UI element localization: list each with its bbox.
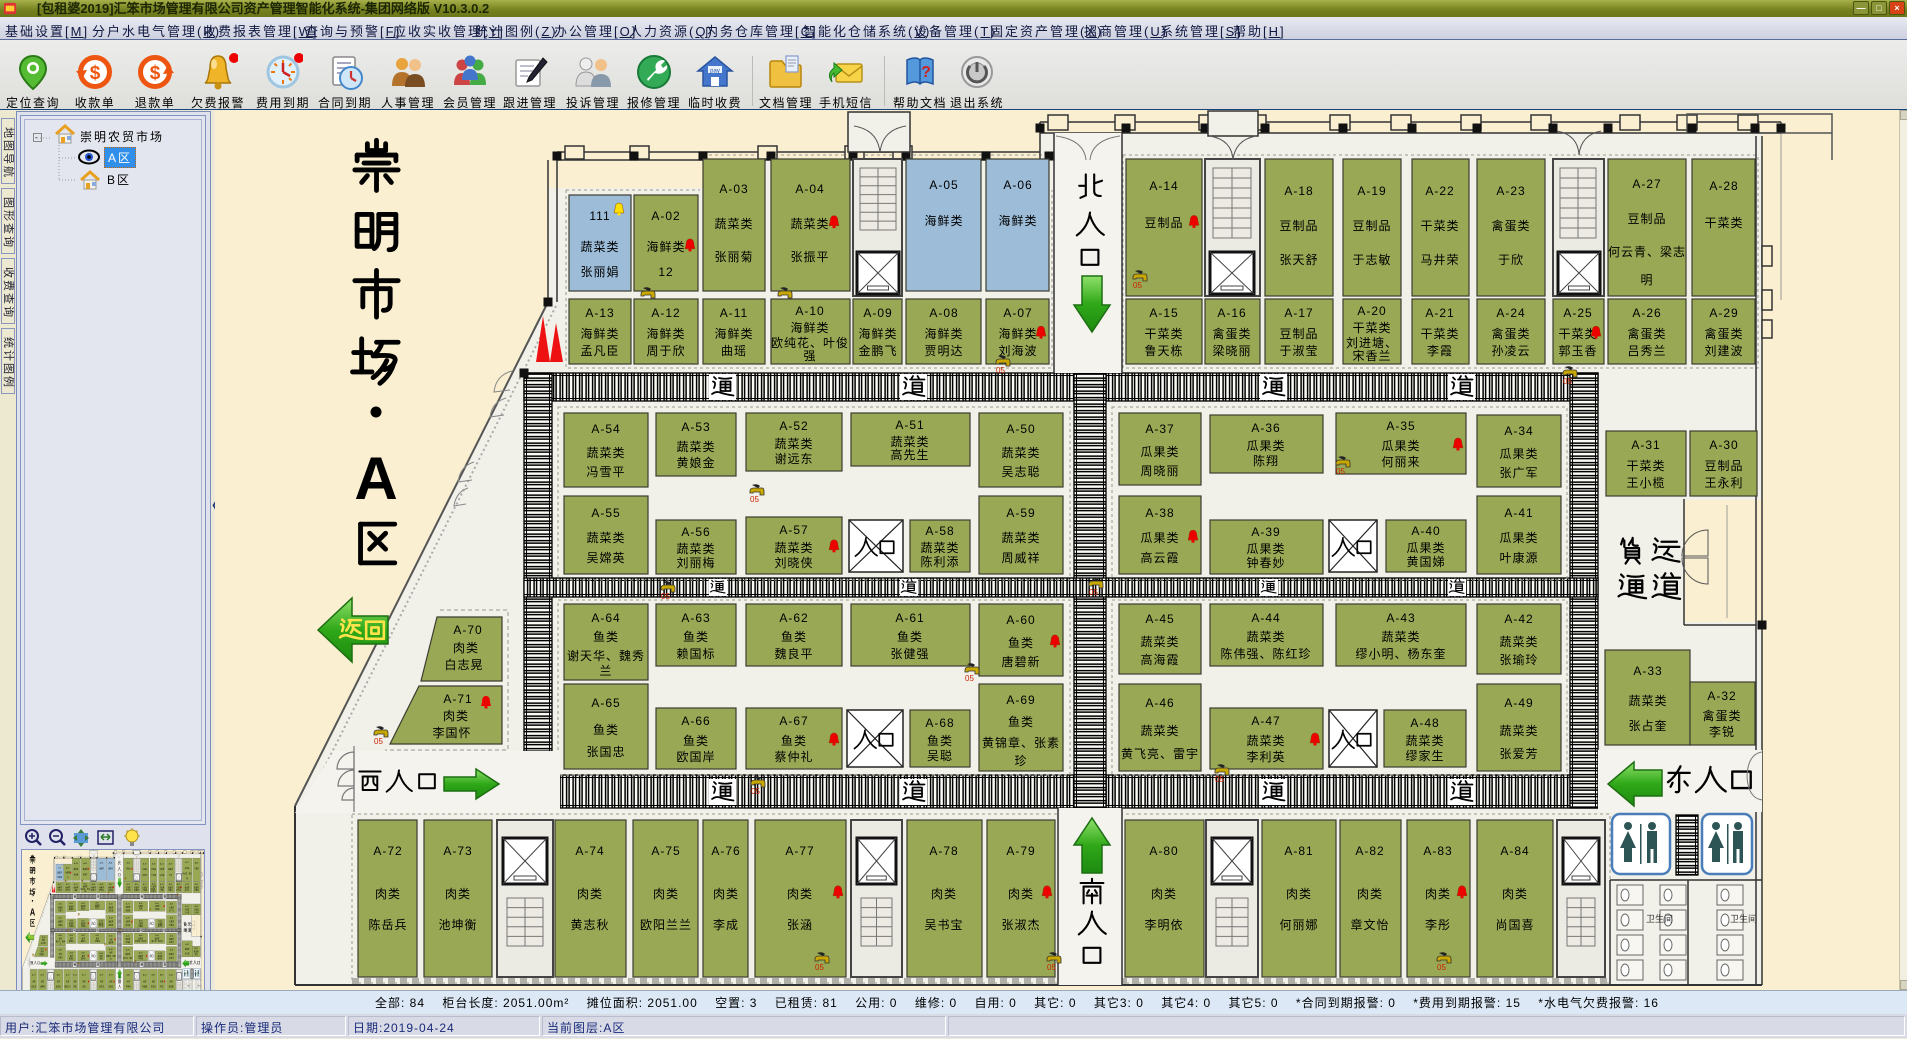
svg-text:陈岳兵: 陈岳兵 xyxy=(368,917,407,932)
svg-text:鱼类: 鱼类 xyxy=(897,630,923,644)
svg-text:05: 05 xyxy=(1437,963,1446,972)
svg-text:A-43: A-43 xyxy=(1386,611,1415,625)
svg-text:A-30: A-30 xyxy=(1709,438,1738,452)
svg-text:05: 05 xyxy=(374,737,383,746)
svg-text:海鲜类: 海鲜类 xyxy=(924,213,963,228)
svg-text:A-52: A-52 xyxy=(779,419,808,433)
svg-text:陈利添: 陈利添 xyxy=(920,554,959,569)
svg-text:瓜果类: 瓜果类 xyxy=(1381,439,1420,453)
svg-text:A-38: A-38 xyxy=(1145,506,1174,520)
svg-text:A-49: A-49 xyxy=(1504,696,1533,710)
svg-text:A-37: A-37 xyxy=(1145,422,1174,436)
svg-text:欧纯花、叶俊: 欧纯花、叶俊 xyxy=(771,335,849,350)
svg-text:海鲜类: 海鲜类 xyxy=(858,326,897,341)
svg-text:高云霞: 高云霞 xyxy=(1140,550,1179,565)
svg-text:马井荣: 马井荣 xyxy=(1420,253,1459,267)
svg-text:禽蛋类: 禽蛋类 xyxy=(1702,708,1741,723)
svg-text:陈伟强、陈红珍: 陈伟强、陈红珍 xyxy=(1220,646,1311,661)
svg-text:05: 05 xyxy=(751,787,760,796)
svg-text:蔬菜类: 蔬菜类 xyxy=(774,437,813,451)
svg-text:A-31: A-31 xyxy=(1631,438,1660,452)
svg-text:A-54: A-54 xyxy=(591,422,620,436)
svg-text:蔬菜类: 蔬菜类 xyxy=(1499,635,1538,649)
svg-text:$: $ xyxy=(90,63,101,84)
svg-text:A-48: A-48 xyxy=(1410,716,1439,730)
svg-text:pay: pay xyxy=(710,69,720,75)
svg-text:A-22: A-22 xyxy=(1425,184,1454,198)
svg-text:A-76: A-76 xyxy=(711,844,740,858)
svg-text:肉类: 肉类 xyxy=(577,887,603,901)
svg-text:张占奎: 张占奎 xyxy=(1628,718,1667,733)
svg-text:黄志秋: 黄志秋 xyxy=(570,918,609,932)
svg-text:张涵: 张涵 xyxy=(787,918,813,932)
svg-text:海鲜类: 海鲜类 xyxy=(646,239,685,254)
svg-text:A-53: A-53 xyxy=(681,420,710,434)
svg-text:A-60: A-60 xyxy=(1006,613,1035,627)
svg-text:05: 05 xyxy=(1133,281,1142,290)
svg-text:A-27: A-27 xyxy=(1632,177,1661,191)
svg-text:刘海波: 刘海波 xyxy=(998,343,1037,358)
svg-text:干菜类: 干菜类 xyxy=(1144,327,1183,341)
svg-text:A-83: A-83 xyxy=(1423,844,1452,858)
svg-text:A-19: A-19 xyxy=(1357,184,1386,198)
svg-text:吕秀兰: 吕秀兰 xyxy=(1627,344,1666,358)
svg-text:A-18: A-18 xyxy=(1284,184,1313,198)
svg-text:蔬菜类: 蔬菜类 xyxy=(790,217,829,231)
svg-text:A-67: A-67 xyxy=(779,714,808,728)
svg-text:章文怡: 章文怡 xyxy=(1350,917,1389,932)
svg-text:A-57: A-57 xyxy=(779,523,808,537)
svg-text:蔬菜类: 蔬菜类 xyxy=(586,531,625,545)
svg-text:鱼类: 鱼类 xyxy=(781,630,807,644)
svg-text:A-45: A-45 xyxy=(1145,612,1174,626)
svg-text:于志敏: 于志敏 xyxy=(1352,252,1391,267)
svg-text:瓜果类: 瓜果类 xyxy=(1499,447,1538,461)
svg-text:$: $ xyxy=(150,63,161,84)
svg-text:A-79: A-79 xyxy=(1006,844,1035,858)
svg-text:张广军: 张广军 xyxy=(1499,466,1538,480)
svg-text:海鲜类: 海鲜类 xyxy=(924,326,963,341)
svg-text:明: 明 xyxy=(1640,273,1653,287)
svg-text:蔬菜类: 蔬菜类 xyxy=(676,542,715,556)
svg-text:肉类: 肉类 xyxy=(1286,887,1312,901)
svg-text:肉类: 肉类 xyxy=(1151,887,1177,901)
svg-text:兰: 兰 xyxy=(599,664,612,678)
svg-text:A-32: A-32 xyxy=(1707,689,1736,703)
svg-text:肉类: 肉类 xyxy=(445,887,471,901)
svg-text:A-63: A-63 xyxy=(681,611,710,625)
svg-text:干菜类: 干菜类 xyxy=(1420,327,1459,341)
svg-text:周威祥: 周威祥 xyxy=(1001,551,1040,565)
svg-text:蔬菜类: 蔬菜类 xyxy=(1001,446,1040,460)
svg-text:A-82: A-82 xyxy=(1355,844,1384,858)
svg-text:缪小明、杨东奎: 缪小明、杨东奎 xyxy=(1355,646,1446,661)
svg-text:05: 05 xyxy=(996,366,1005,375)
svg-text:干菜类: 干菜类 xyxy=(1420,219,1459,233)
svg-text:禽蛋类: 禽蛋类 xyxy=(1212,326,1251,341)
svg-text:钟春妙: 钟春妙 xyxy=(1246,555,1285,570)
svg-text:蔬菜类: 蔬菜类 xyxy=(586,446,625,460)
svg-text:A-62: A-62 xyxy=(779,611,808,625)
svg-text:张爱芳: 张爱芳 xyxy=(1499,747,1538,761)
svg-text:A-70: A-70 xyxy=(453,623,482,637)
svg-text:05: 05 xyxy=(1215,775,1224,784)
svg-text:周于欣: 周于欣 xyxy=(646,344,685,358)
svg-text:瓜果类: 瓜果类 xyxy=(1499,531,1538,545)
svg-text:卫生间: 卫生间 xyxy=(1646,913,1673,924)
svg-text:蔬菜类: 蔬菜类 xyxy=(1246,630,1285,644)
svg-text:肉类: 肉类 xyxy=(1502,887,1528,901)
svg-text:禽蛋类: 禽蛋类 xyxy=(1491,326,1530,341)
svg-text:张丽菊: 张丽菊 xyxy=(714,250,753,264)
svg-text:吴嫦英: 吴嫦英 xyxy=(586,550,625,565)
svg-text:05: 05 xyxy=(1089,588,1098,597)
svg-text:李霞: 李霞 xyxy=(1427,343,1453,358)
svg-text:A-69: A-69 xyxy=(1006,693,1035,707)
svg-text:缪家生: 缪家生 xyxy=(1405,748,1444,763)
svg-text:肉类: 肉类 xyxy=(1008,887,1034,901)
svg-text:李利英: 李利英 xyxy=(1246,749,1285,764)
svg-text:蔬菜类: 蔬菜类 xyxy=(1381,630,1420,644)
svg-text:05: 05 xyxy=(1563,377,1572,386)
svg-text:A-07: A-07 xyxy=(1003,306,1032,320)
svg-text:刘建波: 刘建波 xyxy=(1704,344,1743,358)
svg-text:蔡仲礼: 蔡仲礼 xyxy=(774,749,813,764)
svg-text:A-56: A-56 xyxy=(681,525,710,539)
svg-text:A-20: A-20 xyxy=(1357,304,1386,318)
svg-text:A-15: A-15 xyxy=(1149,306,1178,320)
svg-text:鱼类: 鱼类 xyxy=(683,630,709,644)
svg-text:肉类: 肉类 xyxy=(931,887,957,901)
svg-text:A-72: A-72 xyxy=(373,844,402,858)
svg-text:A-40: A-40 xyxy=(1411,524,1440,538)
svg-text:郭玉香: 郭玉香 xyxy=(1558,344,1597,358)
svg-text:蔬菜类: 蔬菜类 xyxy=(774,541,813,555)
svg-text:A-36: A-36 xyxy=(1251,421,1280,435)
svg-text:A-55: A-55 xyxy=(591,506,620,520)
svg-text:A-06: A-06 xyxy=(1003,178,1032,192)
svg-text:A-68: A-68 xyxy=(925,716,954,730)
svg-text:于欣: 于欣 xyxy=(1498,253,1524,267)
svg-text:蔬菜类: 蔬菜类 xyxy=(714,217,753,231)
svg-text:肉类: 肉类 xyxy=(1425,887,1451,901)
svg-text:欧国岸: 欧国岸 xyxy=(676,750,715,764)
svg-text:05: 05 xyxy=(1336,467,1345,476)
svg-text:魏良平: 魏良平 xyxy=(774,646,813,661)
svg-text:刘晓侠: 刘晓侠 xyxy=(774,556,813,570)
svg-text:05: 05 xyxy=(750,495,759,504)
svg-text:A-58: A-58 xyxy=(925,524,954,538)
svg-text:李彤: 李彤 xyxy=(1425,917,1451,932)
svg-text:A-77: A-77 xyxy=(785,844,814,858)
svg-text:瓜果类: 瓜果类 xyxy=(1140,445,1179,459)
svg-text:A-80: A-80 xyxy=(1149,844,1178,858)
svg-text:瓜果类: 瓜果类 xyxy=(1406,541,1445,555)
svg-text:肉类: 肉类 xyxy=(653,887,679,901)
svg-text:A-61: A-61 xyxy=(895,611,924,625)
svg-text:黄飞亮、雷宇: 黄飞亮、雷宇 xyxy=(1121,746,1199,761)
svg-text:孙凌云: 孙凌云 xyxy=(1491,344,1530,358)
svg-text:瓜果类: 瓜果类 xyxy=(1246,542,1285,556)
svg-text:孟凡臣: 孟凡臣 xyxy=(580,344,619,358)
svg-text:李成: 李成 xyxy=(713,917,739,932)
svg-text:A-28: A-28 xyxy=(1709,179,1738,193)
svg-text:蔬菜类: 蔬菜类 xyxy=(1499,724,1538,738)
svg-text:肉类: 肉类 xyxy=(787,887,813,901)
svg-text:宋香兰: 宋香兰 xyxy=(1352,348,1391,363)
svg-text:A-12: A-12 xyxy=(651,306,680,320)
svg-text:肉类: 肉类 xyxy=(443,709,469,723)
svg-text:李国怀: 李国怀 xyxy=(432,725,471,740)
svg-text:A-65: A-65 xyxy=(591,696,620,710)
svg-text:05: 05 xyxy=(815,963,824,972)
svg-text:海鲜类: 海鲜类 xyxy=(714,326,753,341)
svg-text:干菜类: 干菜类 xyxy=(1626,459,1665,473)
svg-text:高海霞: 高海霞 xyxy=(1140,652,1179,667)
svg-text:蔬菜类: 蔬菜类 xyxy=(676,440,715,454)
svg-text:A-35: A-35 xyxy=(1386,419,1415,433)
svg-text:海鲜类: 海鲜类 xyxy=(998,213,1037,228)
svg-text:111: 111 xyxy=(589,209,610,223)
svg-text:蔬菜类: 蔬菜类 xyxy=(920,541,959,555)
svg-text:A-33: A-33 xyxy=(1633,664,1662,678)
svg-text:蔬菜类: 蔬菜类 xyxy=(1140,724,1179,738)
svg-text:豆制品: 豆制品 xyxy=(1704,459,1743,473)
svg-text:曲瑶: 曲瑶 xyxy=(721,344,747,358)
svg-text:李锐: 李锐 xyxy=(1709,724,1735,739)
svg-text:蔬菜类: 蔬菜类 xyxy=(1140,635,1179,649)
svg-text:A-42: A-42 xyxy=(1504,612,1533,626)
svg-text:瓜果类: 瓜果类 xyxy=(1140,531,1179,545)
svg-text:A-16: A-16 xyxy=(1217,306,1246,320)
svg-text:张丽娟: 张丽娟 xyxy=(580,265,619,279)
svg-text:吴志聪: 吴志聪 xyxy=(1001,465,1040,479)
svg-text:珍: 珍 xyxy=(1014,754,1027,768)
svg-text:肉类: 肉类 xyxy=(713,887,739,901)
svg-text:豆制品: 豆制品 xyxy=(1279,219,1318,233)
svg-text:豆制品: 豆制品 xyxy=(1279,327,1318,341)
svg-text:王永利: 王永利 xyxy=(1704,476,1743,490)
svg-text:A-84: A-84 xyxy=(1500,844,1529,858)
svg-text:禽蛋类: 禽蛋类 xyxy=(1491,218,1530,233)
svg-text:梁晓丽: 梁晓丽 xyxy=(1212,343,1251,358)
svg-text:鱼类: 鱼类 xyxy=(593,630,619,644)
svg-text:李明依: 李明依 xyxy=(1144,917,1183,932)
svg-text:干菜类: 干菜类 xyxy=(1704,216,1743,230)
svg-text:A-64: A-64 xyxy=(591,611,620,625)
svg-text:A-03: A-03 xyxy=(719,182,748,196)
svg-text:鱼类: 鱼类 xyxy=(593,723,619,737)
svg-text:A-26: A-26 xyxy=(1632,306,1661,320)
svg-text:肉类: 肉类 xyxy=(453,641,479,655)
svg-text:张国忠: 张国忠 xyxy=(586,745,625,759)
svg-text:A-74: A-74 xyxy=(575,844,604,858)
svg-text:A-66: A-66 xyxy=(681,714,710,728)
svg-text:张天舒: 张天舒 xyxy=(1279,253,1318,267)
svg-text:张健强: 张健强 xyxy=(890,647,929,661)
svg-text:?: ? xyxy=(921,64,931,81)
svg-text:赖国标: 赖国标 xyxy=(676,647,715,661)
svg-text:A-39: A-39 xyxy=(1251,525,1280,539)
svg-text:05: 05 xyxy=(1047,963,1056,972)
svg-text:于淑莹: 于淑莹 xyxy=(1279,344,1318,358)
svg-text:禽蛋类: 禽蛋类 xyxy=(1627,326,1666,341)
svg-text:欧阳兰兰: 欧阳兰兰 xyxy=(640,918,692,932)
svg-text:A-51: A-51 xyxy=(895,418,924,432)
svg-text:何云青、梁志: 何云青、梁志 xyxy=(1608,244,1686,259)
svg-text:海鲜类: 海鲜类 xyxy=(790,320,829,335)
svg-text:A-50: A-50 xyxy=(1006,422,1035,436)
svg-text:A-29: A-29 xyxy=(1709,306,1738,320)
svg-text:A-09: A-09 xyxy=(863,306,892,320)
svg-text:A-78: A-78 xyxy=(929,844,958,858)
svg-text:何丽娜: 何丽娜 xyxy=(1279,918,1318,932)
svg-text:周晓丽: 周晓丽 xyxy=(1140,464,1179,478)
svg-text:吴聪: 吴聪 xyxy=(927,749,953,763)
svg-text:A-13: A-13 xyxy=(585,306,614,320)
svg-text:瓜果类: 瓜果类 xyxy=(1246,439,1285,453)
svg-text:高先生: 高先生 xyxy=(890,447,929,462)
svg-text:黄娘金: 黄娘金 xyxy=(676,455,715,470)
svg-text:A-17: A-17 xyxy=(1284,306,1313,320)
svg-text:A-24: A-24 xyxy=(1496,306,1525,320)
svg-text:A-81: A-81 xyxy=(1284,844,1313,858)
svg-text:A-46: A-46 xyxy=(1145,696,1174,710)
svg-text:A-75: A-75 xyxy=(651,844,680,858)
svg-text:海鲜类: 海鲜类 xyxy=(646,326,685,341)
svg-text:吴书宝: 吴书宝 xyxy=(924,918,963,932)
svg-text:A-71: A-71 xyxy=(443,692,472,706)
svg-text:A-10: A-10 xyxy=(795,304,824,318)
svg-text:张淑杰: 张淑杰 xyxy=(1001,918,1040,932)
svg-text:强: 强 xyxy=(803,349,816,363)
svg-text:黄锦章、张素: 黄锦章、张素 xyxy=(982,735,1060,750)
svg-text:鲁天栋: 鲁天栋 xyxy=(1144,343,1183,358)
svg-text:A-23: A-23 xyxy=(1496,184,1525,198)
svg-text:A-02: A-02 xyxy=(651,209,680,223)
svg-text:卫生间: 卫生间 xyxy=(1730,913,1757,924)
svg-text:蔬菜类: 蔬菜类 xyxy=(580,240,619,254)
svg-text:A-59: A-59 xyxy=(1006,506,1035,520)
svg-text:鱼类: 鱼类 xyxy=(1008,636,1034,650)
svg-text:蔬菜类: 蔬菜类 xyxy=(1001,531,1040,545)
svg-text:蔬菜类: 蔬菜类 xyxy=(1628,694,1667,708)
svg-text:豆制品: 豆制品 xyxy=(1144,216,1183,230)
svg-text:冯雪平: 冯雪平 xyxy=(586,465,625,479)
svg-text:A-44: A-44 xyxy=(1251,611,1280,625)
svg-text:A-04: A-04 xyxy=(795,182,824,196)
svg-text:海鲜类: 海鲜类 xyxy=(580,326,619,341)
svg-text:池坤衡: 池坤衡 xyxy=(438,917,477,932)
svg-text:12: 12 xyxy=(658,265,673,279)
svg-text:陈翔: 陈翔 xyxy=(1253,453,1279,468)
svg-text:黄国娣: 黄国娣 xyxy=(1406,554,1445,569)
svg-text:A-73: A-73 xyxy=(443,844,472,858)
svg-text:A: A xyxy=(354,445,397,512)
svg-text:鱼类: 鱼类 xyxy=(683,734,709,748)
svg-text:A-14: A-14 xyxy=(1149,179,1178,193)
svg-text:贾明达: 贾明达 xyxy=(924,344,963,358)
svg-text:王小榄: 王小榄 xyxy=(1626,476,1665,490)
svg-text:干菜类: 干菜类 xyxy=(1352,321,1391,335)
svg-text:谢远东: 谢远东 xyxy=(774,451,813,466)
svg-text:A-34: A-34 xyxy=(1504,424,1533,438)
svg-text:A-25: A-25 xyxy=(1563,306,1592,320)
svg-text:蔬菜类: 蔬菜类 xyxy=(890,435,929,449)
svg-text:蔬菜类: 蔬菜类 xyxy=(1405,734,1444,748)
svg-text:A-41: A-41 xyxy=(1504,506,1533,520)
svg-text:A-05: A-05 xyxy=(929,178,958,192)
svg-text:A-11: A-11 xyxy=(720,306,748,320)
svg-text:鱼类: 鱼类 xyxy=(1008,715,1034,729)
svg-text:蔬菜类: 蔬菜类 xyxy=(1246,734,1285,748)
svg-text:唐碧新: 唐碧新 xyxy=(1001,654,1040,669)
svg-text:肉类: 肉类 xyxy=(1357,887,1383,901)
svg-text:刘丽梅: 刘丽梅 xyxy=(676,555,715,570)
svg-text:肉类: 肉类 xyxy=(375,887,401,901)
svg-text:鱼类: 鱼类 xyxy=(927,734,953,748)
svg-text:白志晃: 白志晃 xyxy=(444,657,483,672)
svg-text:鱼类: 鱼类 xyxy=(781,734,807,748)
svg-text:张瑜玲: 张瑜玲 xyxy=(1499,652,1538,667)
svg-text:张振平: 张振平 xyxy=(790,250,829,264)
svg-text:谢天华、魏秀: 谢天华、魏秀 xyxy=(567,648,645,663)
svg-text:05: 05 xyxy=(965,674,974,683)
svg-text:何丽来: 何丽来 xyxy=(1381,455,1420,469)
svg-text:叶康源: 叶康源 xyxy=(1499,550,1538,565)
svg-text:豆制品: 豆制品 xyxy=(1627,212,1666,226)
svg-text:刘进塘、: 刘进塘、 xyxy=(1346,335,1398,350)
svg-text:A-08: A-08 xyxy=(929,306,958,320)
svg-text:禽蛋类: 禽蛋类 xyxy=(1704,326,1743,341)
svg-text:金鹏飞: 金鹏飞 xyxy=(858,343,897,358)
svg-text:A-47: A-47 xyxy=(1251,714,1280,728)
svg-text:尚国喜: 尚国喜 xyxy=(1495,918,1534,932)
svg-text:海鲜类: 海鲜类 xyxy=(998,326,1037,341)
svg-text:05: 05 xyxy=(661,592,670,601)
svg-text:A-21: A-21 xyxy=(1425,306,1454,320)
svg-text:豆制品: 豆制品 xyxy=(1352,219,1391,233)
